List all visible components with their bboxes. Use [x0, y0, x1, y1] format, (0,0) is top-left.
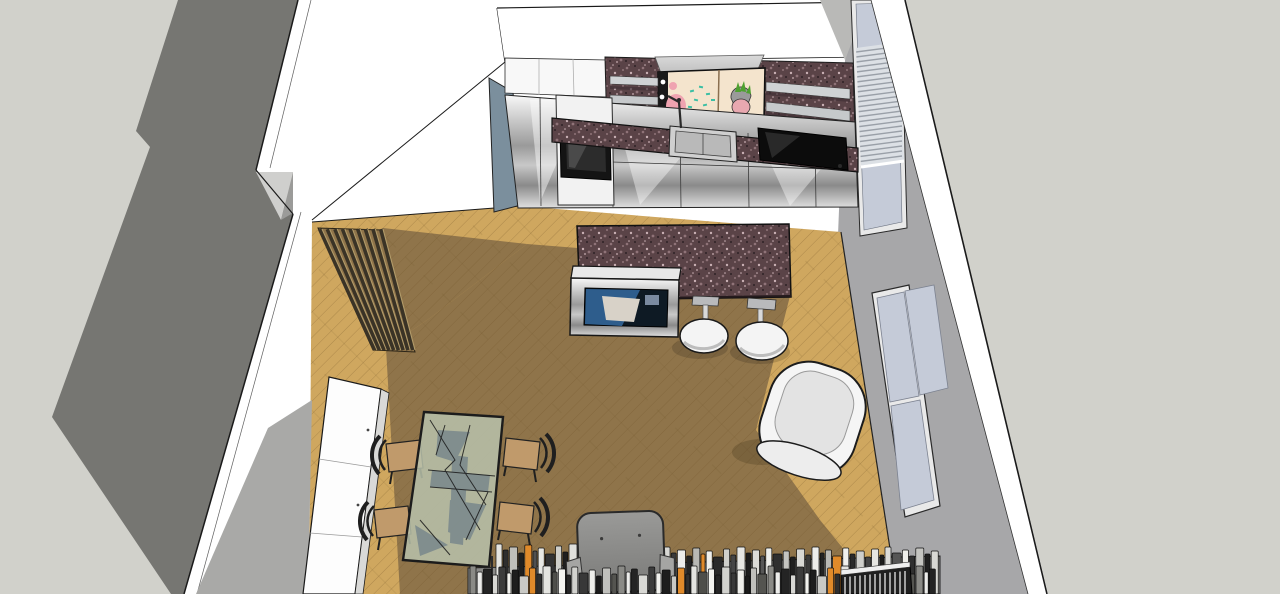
book-spine[interactable] [543, 566, 551, 594]
book-spine[interactable] [512, 570, 518, 594]
book-spine[interactable] [678, 568, 685, 594]
book-spine[interactable] [691, 566, 697, 594]
book-spine[interactable] [671, 576, 676, 594]
book-spine[interactable] [929, 569, 935, 594]
book-spine[interactable] [572, 567, 578, 594]
book-spine[interactable] [537, 574, 542, 594]
book-spine[interactable] [916, 566, 923, 594]
book-spine[interactable] [626, 572, 630, 594]
book-spine[interactable] [483, 569, 491, 594]
book-spine[interactable] [828, 568, 834, 594]
book-spine[interactable] [781, 569, 789, 594]
book-spine[interactable] [662, 570, 670, 594]
book-spine[interactable] [737, 570, 744, 594]
book-spine[interactable] [603, 568, 611, 594]
book-spine[interactable] [797, 567, 804, 594]
book-spine[interactable] [477, 572, 482, 594]
book-spine[interactable] [631, 569, 637, 594]
book-spine[interactable] [530, 568, 536, 594]
book-spine[interactable] [656, 573, 661, 594]
book-spine[interactable] [612, 574, 617, 594]
book-spine[interactable] [639, 575, 648, 594]
book-spine[interactable] [686, 574, 690, 594]
render-stage [0, 0, 1280, 594]
book-spine[interactable] [507, 573, 511, 594]
book-spine[interactable] [519, 576, 528, 594]
book-spine[interactable] [745, 576, 749, 594]
book-spine[interactable] [558, 569, 565, 594]
book-spine[interactable] [470, 566, 476, 594]
book-spine[interactable] [722, 567, 730, 594]
book-spine[interactable] [567, 575, 571, 594]
upper-cabinets[interactable] [505, 58, 608, 97]
book-spine[interactable] [924, 572, 928, 594]
book-spine[interactable] [731, 573, 736, 594]
book-spine[interactable] [835, 574, 840, 594]
kitchen [489, 55, 858, 212]
book-spine[interactable] [768, 566, 774, 594]
book-spine[interactable] [589, 570, 595, 594]
book-spine[interactable] [618, 566, 625, 594]
book-spine[interactable] [596, 576, 601, 594]
back-wall [497, 2, 871, 62]
book-spine[interactable] [817, 576, 826, 594]
book-spine[interactable] [579, 573, 588, 594]
book-spine[interactable] [791, 575, 796, 594]
book-spine[interactable] [698, 572, 707, 594]
book-spine[interactable] [493, 575, 498, 594]
book-spine[interactable] [499, 567, 506, 594]
chair-seat [503, 438, 540, 470]
book-spine[interactable] [805, 573, 809, 594]
3d-viewport[interactable] [0, 0, 1280, 594]
chair-seat [497, 502, 534, 534]
book-spine[interactable] [810, 570, 816, 594]
oven-column [556, 95, 614, 205]
island-media-unit [570, 266, 681, 337]
book-spine[interactable] [758, 574, 767, 594]
book-spine[interactable] [751, 568, 757, 594]
book-spine[interactable] [716, 575, 721, 594]
book-spine[interactable] [649, 567, 655, 594]
book-spine[interactable] [775, 572, 780, 594]
book-spine[interactable] [552, 572, 557, 594]
book-spine[interactable] [708, 569, 714, 594]
chair-seat [374, 506, 411, 538]
